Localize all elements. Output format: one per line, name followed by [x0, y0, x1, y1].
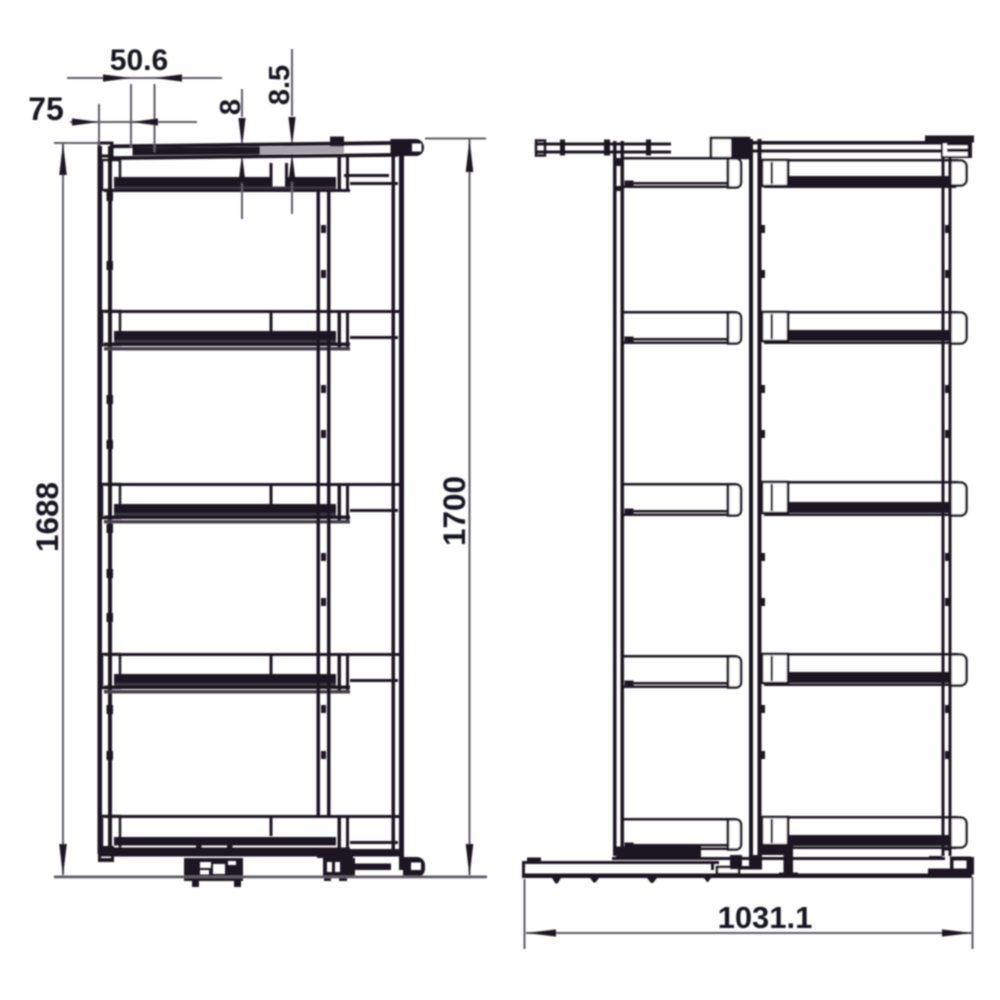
svg-text:1688: 1688	[29, 482, 65, 552]
svg-text:1700: 1700	[436, 476, 472, 546]
svg-text:1031.1: 1031.1	[718, 900, 813, 935]
svg-text:50.6: 50.6	[110, 44, 168, 77]
svg-text:75: 75	[28, 91, 64, 127]
